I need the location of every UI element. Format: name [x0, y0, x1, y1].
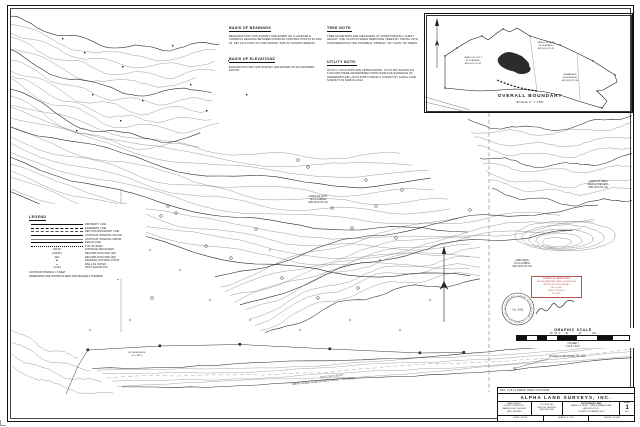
note-body: BEARINGS FOR THIS SURVEY ARE BASED ON A … [229, 35, 324, 45]
county-approval-stamp: COUNTY OF SANTA CRUZENVIRONMENTAL HEALTH… [531, 276, 582, 298]
graphic-scale-bar [516, 335, 630, 341]
inset-parcel-label: REMAINDER18.20 ACRES±APN 076-271-33 [546, 74, 594, 83]
inset-scale: SCALE 1" = 150' [455, 100, 605, 104]
legend-title: LEGEND [29, 215, 46, 221]
graphic-scale-title: GRAPHIC SCALE [512, 328, 634, 332]
legend: LEGEND PROPERTY LINE EASEMENT LINE SECTI… [28, 204, 146, 279]
office-address-1: MAIN OFFICE265-B POTRERO ST. SANTA CRUZ,… [498, 402, 532, 415]
note-basis-of-elevations: BASIS OF ELEVATIONS ELEVATIONS FOR THIS … [229, 47, 324, 73]
parcel-label-right: LANDS OF SESS(DESIGN REVIEW)APN (076-271… [568, 180, 628, 189]
project-description: TOPOGRAPHIC MAPLANDS OF SESS — SMITH GRA… [563, 402, 620, 415]
found-pipe-note: FOUND 1/2" IRON PIPE, NO TAG [549, 355, 585, 358]
note-title: BASIS OF ELEVATIONS [229, 57, 275, 63]
inset-parcel-label: LANDS OF GOTT30.31 ACRES±APN 076-271-31 [449, 57, 497, 66]
inset-title: OVERALL BOUNDARY [455, 94, 605, 99]
note-title: TREE NOTE: [327, 26, 352, 32]
note-basis-of-bearings: BASIS OF BEARINGS BEARINGS FOR THIS SURV… [229, 16, 324, 45]
legend-footnote: DIMENSIONS ARE SHOWN IN FEET AND DECIMAL… [29, 275, 145, 278]
note-title: BASIS OF BEARINGS [229, 26, 271, 32]
note-utility: UTILITY NOTE: UTILITY LOCATIONS ARE APPR… [327, 50, 419, 82]
note-body: ELEVATIONS FOR THIS SURVEY ARE BASED ON … [229, 66, 324, 73]
surveyor-signature [536, 300, 574, 314]
note-tree: TREE NOTE: TREE DIAMETERS ARE MEASURED A… [327, 16, 419, 45]
office-address-2: P.O. BOX 100FELTON, CA 95018 (831) 335-5… [532, 402, 564, 415]
title-block: REV: 3-28-12 ADDED TREE LOCATIONS ALPHA … [497, 387, 635, 422]
inset-parcel-label: LANDS OF SESS24.75 ACRES±APN 076-271-32 [522, 42, 570, 51]
legend-footnote: CONTOUR INTERVAL = 5 FEET [29, 271, 145, 274]
note-body: TREE DIAMETERS ARE MEASURED AT APPROXIMA… [327, 35, 419, 45]
north-arrow [440, 246, 449, 322]
parcel-label-center: LANDS OF GOTT30.31 ACRES±APN (076-271-31… [288, 195, 348, 204]
note-body: UTILITY LOCATIONS ARE APPROXIMATE. UTILI… [327, 69, 419, 83]
note-title: UTILITY NOTE: [327, 60, 357, 66]
survey-sheet: LICENSED LAND SURVEYOR • STATE OF CALIFO… [0, 0, 640, 427]
company-name: ALPHA LAND SURVEYS, INC. [498, 394, 634, 402]
graphic-scale-equiv: 1 inch = 30 ft. [512, 345, 634, 348]
residence-label: EX. RESIDENCEFF = 362.4 [116, 352, 158, 358]
sheet-number-cell: SHEET 1 OF 1 [620, 402, 634, 415]
found-pipe-leader [514, 359, 549, 370]
parcel-label-mid: ANNA SESS10.01 ACRES±APN (076-271-32) [492, 259, 552, 268]
legend-row: × 123.4SPOT ELEVATION [29, 266, 145, 270]
graphic-scale: GRAPHIC SCALE 30 15 0 30 60 120 ( IN FEE… [512, 328, 634, 348]
title-block-footer: DATE: 3-2012SCALE: 1" = 30'JOB NO. 12-03… [498, 416, 634, 422]
seal-number: No. 5411 [512, 307, 524, 311]
